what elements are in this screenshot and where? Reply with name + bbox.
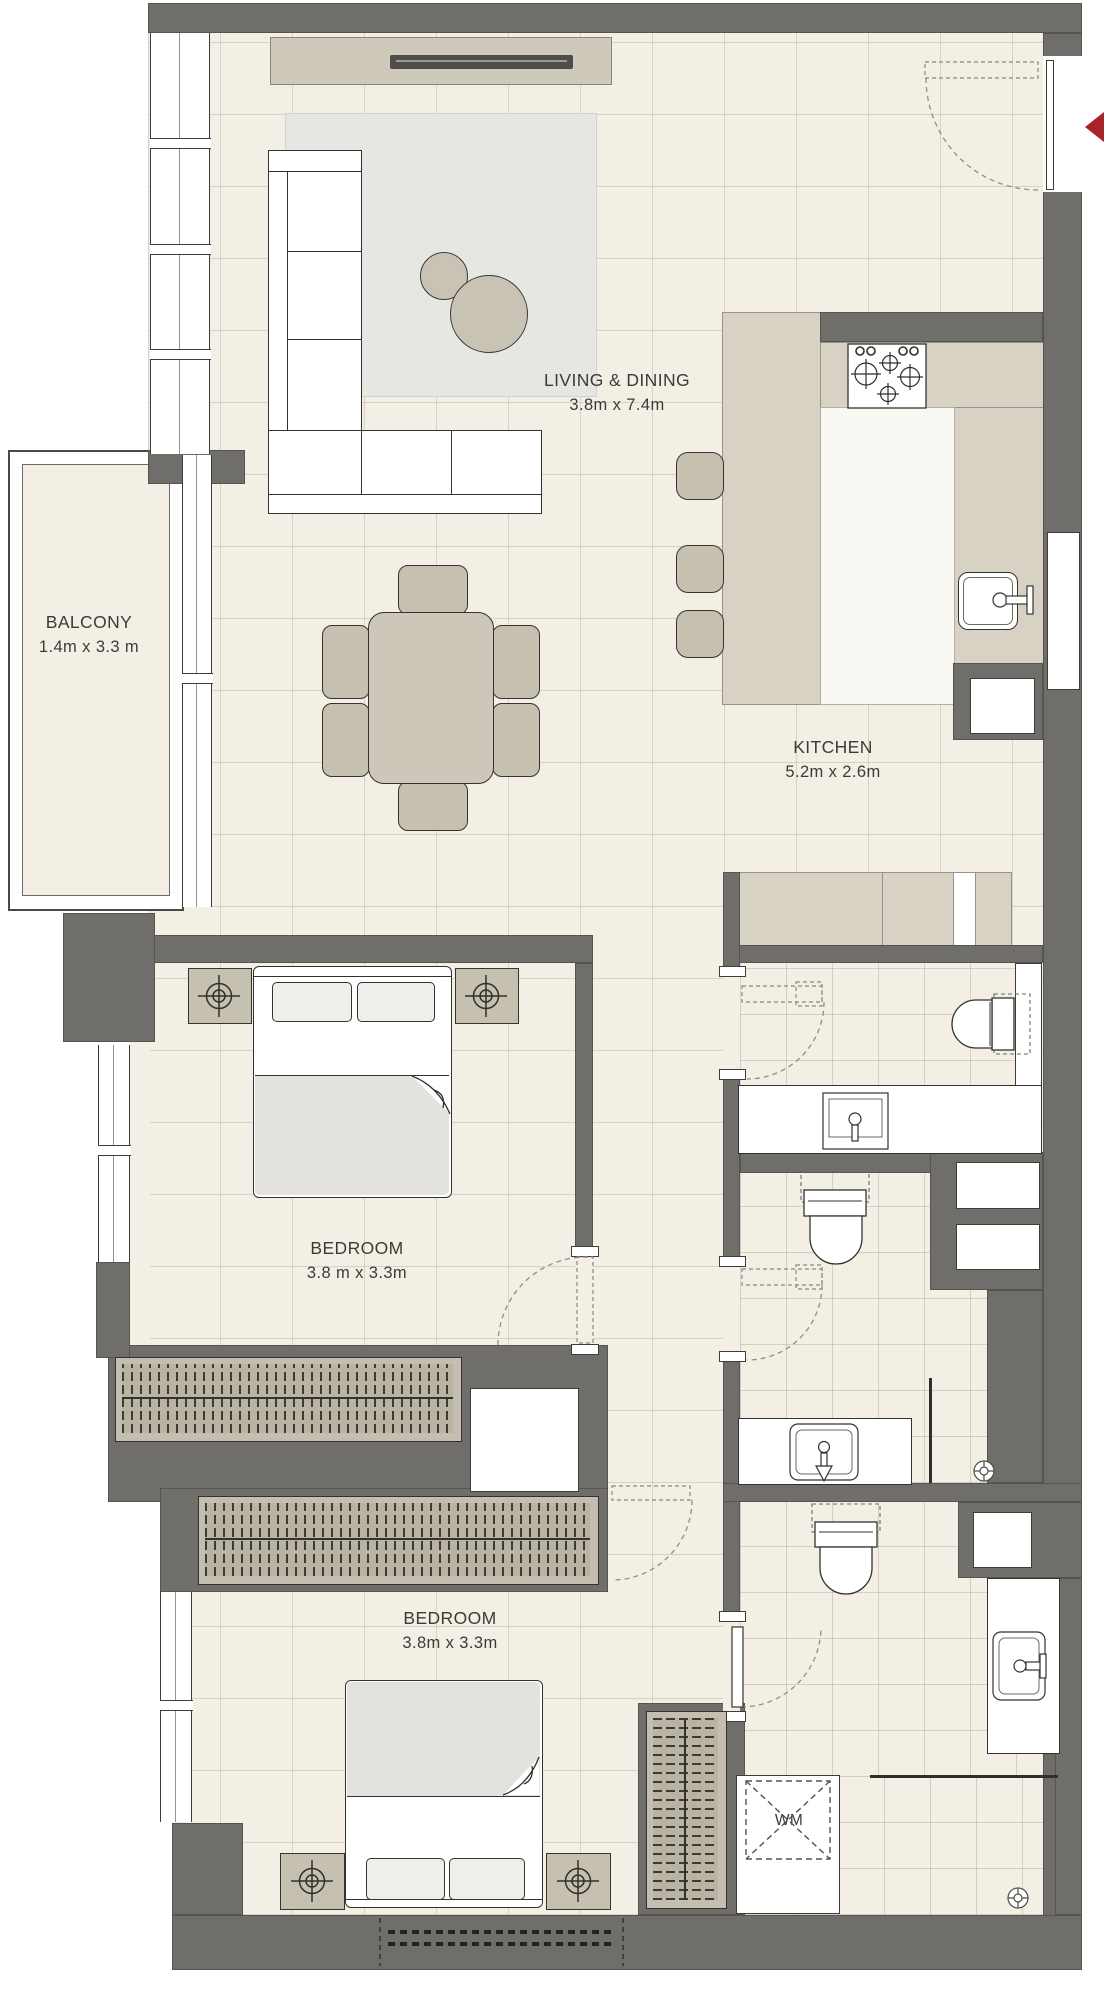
television [390,55,573,69]
room-name: LIVING & DINING [544,368,690,393]
dining-chair [322,703,370,777]
door-frame [719,1069,746,1080]
pillow [366,1858,445,1900]
nightstand [546,1853,611,1910]
bar-stool [676,545,724,593]
room-name: BEDROOM [402,1606,497,1631]
bathroom-3-door-opening [723,1620,740,1712]
bathroom-1-door-opening [723,975,740,1070]
dining-chair [322,625,370,699]
bedroom-1-door-opening [575,1255,593,1345]
washing-machine-label: WM [775,1808,803,1833]
dining-chair [398,565,468,615]
wall-kitchen-bottom [723,945,1043,963]
shower-screen-line [870,1775,1058,1778]
kitchen-walkway [820,407,955,705]
kitchen-counter-bottom-b [882,872,955,947]
wall-west-pier [96,1262,130,1358]
tv-screen-line [396,60,567,62]
dining-chair [398,781,468,831]
kitchen-label: KITCHEN 5.2m x 2.6m [785,735,880,785]
wall-southwest-jog [172,1823,243,1915]
nightstand [188,968,252,1024]
living-window [150,33,210,454]
wardrobe-3-rail [684,1718,686,1900]
balcony-label: BALCONY 1.4m x 3.3 m [39,610,139,660]
wall-northwest-pier [63,913,155,1042]
nightstand [455,968,519,1024]
kitchen-counter-top [820,342,1045,409]
room-name: KITCHEN [785,735,880,760]
wall-bottom [172,1915,1082,1970]
room-dims: 3.8m x 7.4m [544,393,690,418]
sofa-seat [268,430,542,514]
balcony-floor [22,464,170,896]
nightstand [280,1853,345,1910]
door-frame [571,1246,599,1257]
room-dims: 3.8m x 3.3m [402,1631,497,1656]
appliance-space [953,872,977,947]
door-frame [719,1611,746,1622]
wall-bath2-right [987,1290,1043,1483]
dining-chair [492,625,540,699]
dining-table [368,612,494,784]
duct-shaft [956,1162,1040,1209]
living-dining-label: LIVING & DINING 3.8m x 7.4m [544,368,690,418]
room-dims: 1.4m x 3.3 m [39,635,139,660]
vanity-2 [738,1418,912,1485]
pillow [357,982,435,1022]
sofa-chaise [268,150,362,433]
duct-shaft [973,1512,1032,1568]
bedroom-1-window [98,1045,130,1262]
duct-shaft [970,678,1035,734]
wall-top [148,3,1082,33]
floor-plan: LIVING & DINING 3.8m x 7.4m BALCONY 1.4m… [0,0,1109,1994]
vanity-1 [738,1085,1042,1154]
door-frame [719,1351,746,1362]
shower-tray [1015,963,1042,1087]
shower-partition [929,1378,932,1483]
wardrobe-1-rail [122,1397,453,1399]
bar-stool [676,452,724,500]
bathroom-2-door-opening [723,1265,740,1352]
room-name: BALCONY [39,610,139,635]
duct-shaft [470,1388,579,1492]
bed-2-blanket [347,1682,540,1797]
wall-bath2-bath3 [723,1483,1082,1502]
bar-stool [676,610,724,658]
door-frame [719,966,746,977]
pillow [272,982,352,1022]
vanity-3 [987,1578,1060,1754]
laundry-floor [838,1777,1055,1915]
wardrobe-2-rail [205,1538,590,1540]
room-dims: 3.8 m x 3.3m [307,1261,407,1286]
door-frame [719,1256,746,1267]
duct-shaft [1047,532,1080,690]
bedroom-2-label: BEDROOM 3.8m x 3.3m [402,1606,497,1656]
wall-kitchen-top [820,312,1043,342]
kitchen-sink [958,572,1018,630]
kitchen-counter-bottom-c [975,872,1012,947]
door-frame [571,1344,599,1355]
duct-shaft [956,1224,1040,1270]
entry-door-jamb [1046,60,1054,190]
exterior-southwest [148,1822,174,1915]
dining-chair [492,703,540,777]
bedroom-2-window [160,1592,192,1822]
bed-1-blanket [255,1075,449,1195]
balcony-sliding-door [182,455,212,907]
room-name: BEDROOM [307,1236,407,1261]
room-dims: 5.2m x 2.6m [785,760,880,785]
entrance-arrow-icon [1085,112,1104,142]
kitchen-counter-bottom-a [735,872,884,947]
pillow [449,1858,525,1900]
pouf-large [450,275,528,353]
bedroom-1-label: BEDROOM 3.8 m x 3.3m [307,1236,407,1286]
kitchen-island [722,312,822,705]
wall-bedroom1-right [575,963,593,1255]
washing-machine-niche [736,1775,840,1914]
